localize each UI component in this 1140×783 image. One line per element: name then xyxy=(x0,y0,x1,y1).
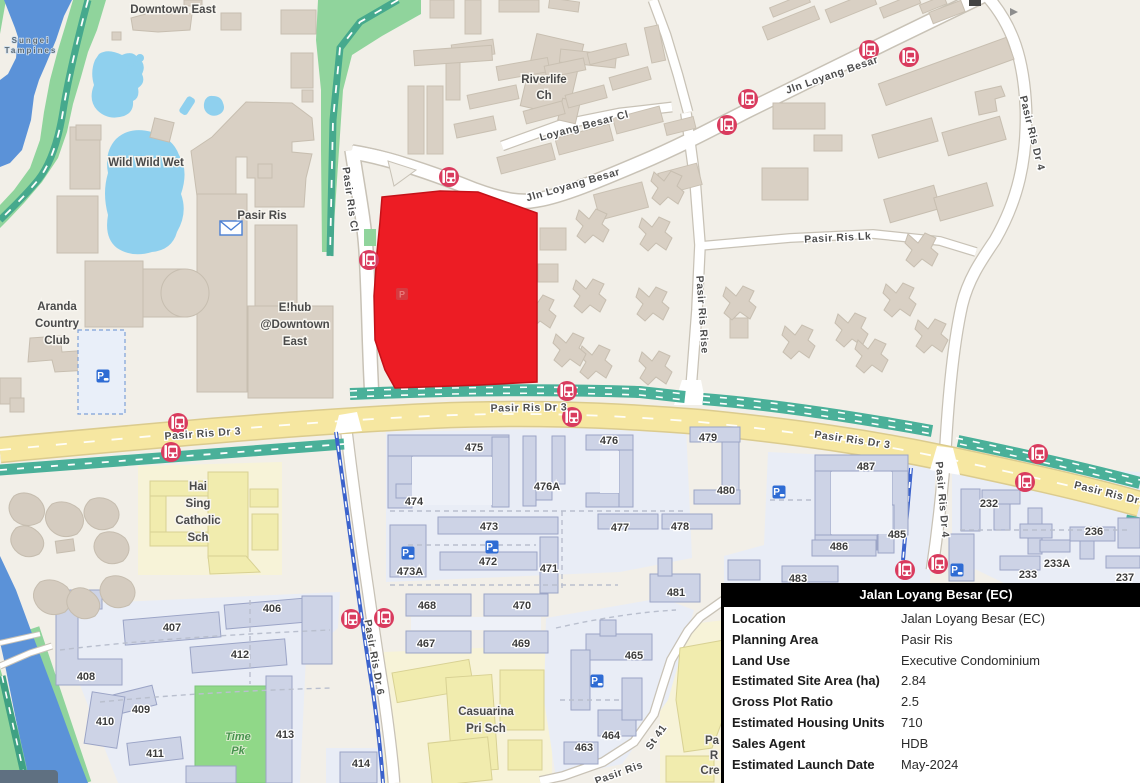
svg-text:E!hub: E!hub xyxy=(279,302,312,314)
svg-text:@Downtown: @Downtown xyxy=(260,319,329,331)
svg-text:468: 468 xyxy=(418,600,436,612)
svg-text:472: 472 xyxy=(479,556,497,568)
svg-text:414: 414 xyxy=(352,758,371,770)
svg-text:481: 481 xyxy=(667,587,685,599)
svg-text:465: 465 xyxy=(625,650,643,662)
svg-text:475: 475 xyxy=(465,442,483,454)
svg-text:410: 410 xyxy=(96,716,114,728)
svg-text:407: 407 xyxy=(163,622,181,634)
svg-text:413: 413 xyxy=(276,729,294,741)
svg-text:Tampines: Tampines xyxy=(5,46,58,55)
svg-text:477: 477 xyxy=(611,522,629,534)
svg-text:233: 233 xyxy=(1019,569,1037,581)
svg-text:486: 486 xyxy=(830,541,848,553)
svg-text:East: East xyxy=(283,336,307,348)
svg-text:Ch: Ch xyxy=(536,90,551,102)
svg-text:476A: 476A xyxy=(534,481,560,493)
svg-text:Time: Time xyxy=(225,731,250,743)
svg-text:469: 469 xyxy=(512,638,530,650)
svg-text:Club: Club xyxy=(44,335,70,347)
svg-text:473A: 473A xyxy=(397,566,423,578)
svg-text:463: 463 xyxy=(575,742,593,754)
svg-text:487: 487 xyxy=(857,461,875,473)
svg-text:Pasir Ris Dr 3: Pasir Ris Dr 3 xyxy=(491,401,568,414)
svg-text:Cre: Cre xyxy=(700,765,719,777)
svg-text:478: 478 xyxy=(671,521,689,533)
svg-text:Pasir Ris: Pasir Ris xyxy=(237,210,286,222)
svg-text:Sing: Sing xyxy=(186,498,211,510)
svg-text:P: P xyxy=(399,290,405,300)
svg-text:411: 411 xyxy=(146,748,164,760)
svg-text:Aranda: Aranda xyxy=(37,301,77,313)
svg-text:408: 408 xyxy=(77,671,95,683)
svg-text:Pa: Pa xyxy=(705,735,720,747)
svg-text:479: 479 xyxy=(699,432,717,444)
svg-text:476: 476 xyxy=(600,435,618,447)
svg-text:Riverlife: Riverlife xyxy=(521,74,566,86)
svg-text:Sch: Sch xyxy=(187,532,208,544)
svg-text:Country: Country xyxy=(35,318,80,330)
svg-text:471: 471 xyxy=(540,563,558,575)
svg-text:406: 406 xyxy=(263,603,281,615)
svg-text:412: 412 xyxy=(231,649,249,661)
svg-text:474: 474 xyxy=(405,496,424,508)
svg-text:R: R xyxy=(710,750,719,762)
svg-text:Sungei: Sungei xyxy=(12,36,51,45)
svg-text:409: 409 xyxy=(132,704,150,716)
svg-text:233A: 233A xyxy=(1044,558,1070,570)
svg-text:464: 464 xyxy=(602,730,621,742)
svg-text:473: 473 xyxy=(480,521,498,533)
svg-text:485: 485 xyxy=(888,529,906,541)
svg-text:Downtown East: Downtown East xyxy=(130,4,216,16)
svg-text:236: 236 xyxy=(1085,526,1103,538)
svg-text:Wild Wild Wet: Wild Wild Wet xyxy=(108,157,184,169)
svg-text:Hai: Hai xyxy=(189,481,207,493)
svg-text:467: 467 xyxy=(417,638,435,650)
svg-text:Pri Sch: Pri Sch xyxy=(466,723,506,735)
svg-text:Casuarina: Casuarina xyxy=(458,706,514,718)
svg-text:232: 232 xyxy=(980,498,998,510)
svg-text:480: 480 xyxy=(717,485,735,497)
svg-text:470: 470 xyxy=(513,600,531,612)
svg-text:Pk: Pk xyxy=(231,745,245,757)
svg-text:Catholic: Catholic xyxy=(175,515,221,527)
